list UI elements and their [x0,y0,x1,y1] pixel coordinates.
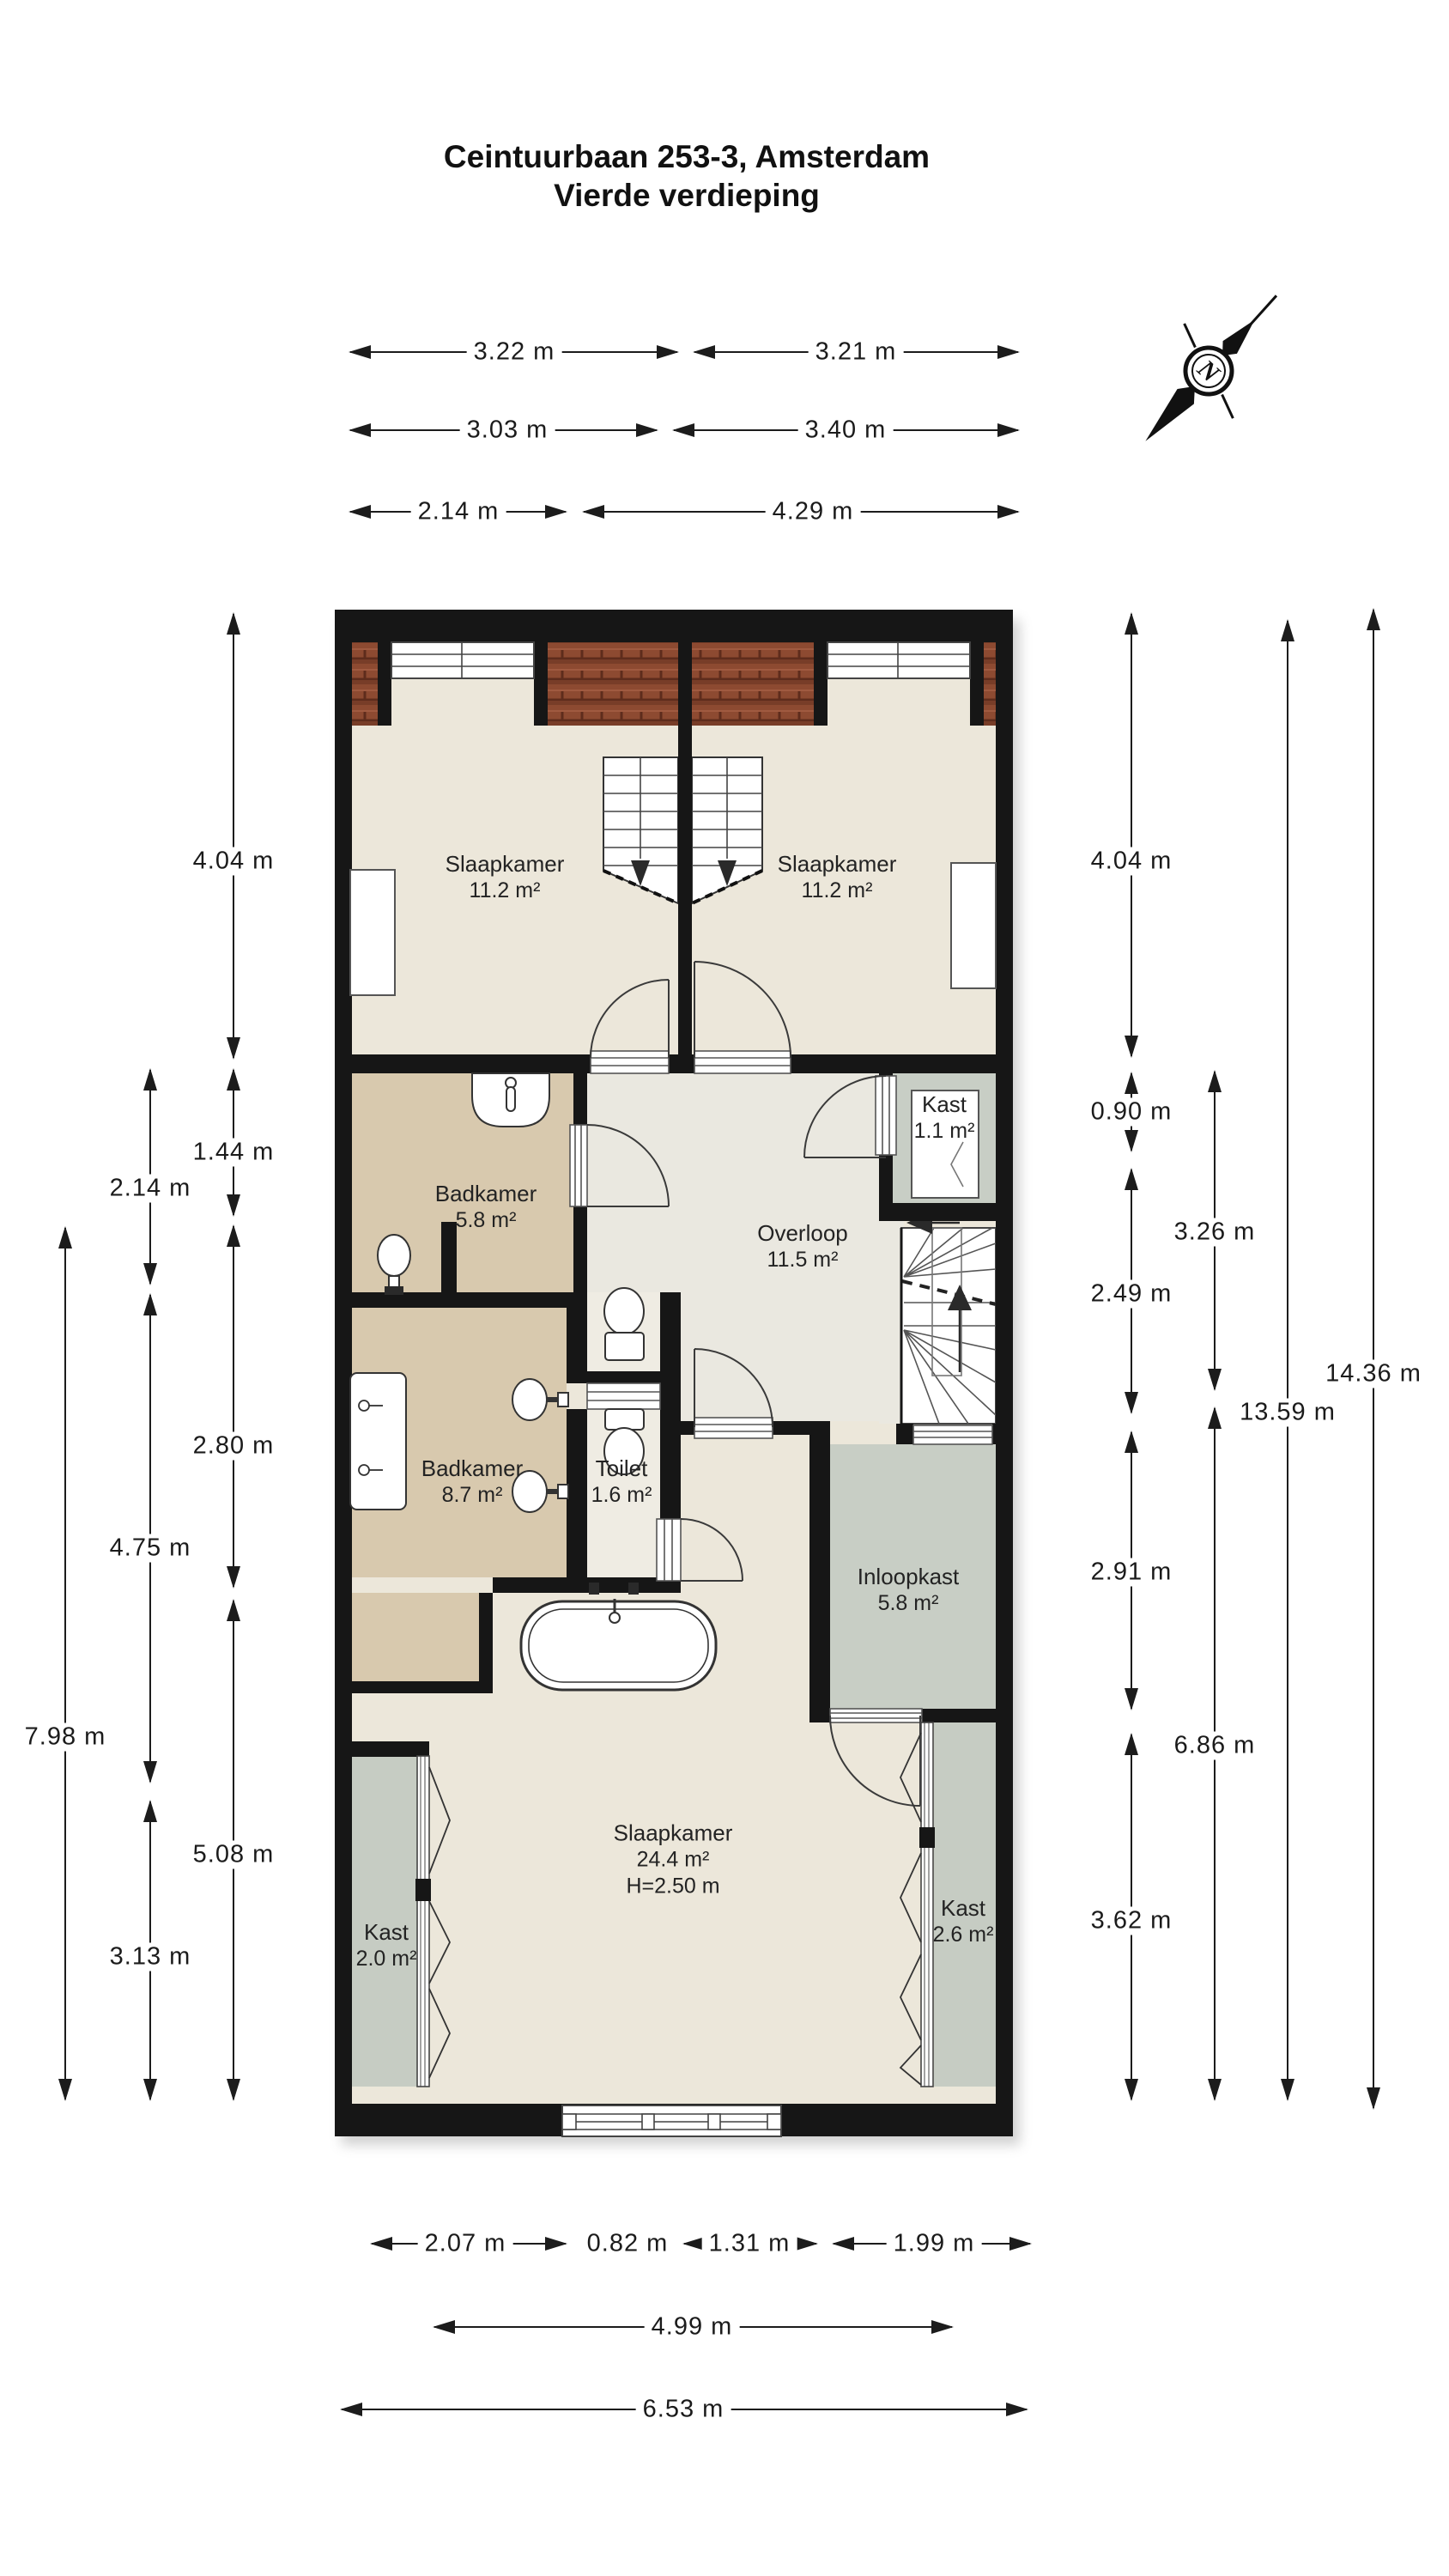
dim-top-1: 3.22 m [467,338,562,367]
dim-left-6: 4.75 m [103,1534,198,1563]
floorplan-svg: N [0,0,1449,2576]
dim-left-2: 1.44 m [186,1139,282,1167]
dim-right-3: 2.49 m [1084,1280,1179,1309]
dim-left-3: 2.80 m [186,1432,282,1461]
room-label-kast-1-1: Kast 1.1 m² [914,1091,975,1145]
dim-bottom-5: 4.99 m [645,2313,740,2342]
dim-right-7: 6.86 m [1167,1732,1263,1760]
dim-top-5: 2.14 m [411,498,506,526]
dim-left-4: 5.08 m [186,1841,282,1869]
bedroom-left-recess [350,870,395,995]
room-label-kast-2-0: Kast 2.0 m² [356,1919,417,1972]
room-label-kast-2-6: Kast 2.6 m² [933,1895,994,1948]
staircase-main [901,1212,996,1424]
dim-right-4: 2.91 m [1084,1558,1179,1587]
room-label-overloop: Overloop 11.5 m² [757,1220,848,1273]
dim-top-2: 3.21 m [809,338,904,367]
dim-left-1: 4.04 m [186,848,282,876]
room-label-slaapkamer-24: Slaapkamer 24.4 m² H=2.50 m [614,1820,733,1900]
compass-icon: N [1108,262,1313,474]
dim-right-5: 3.62 m [1084,1907,1179,1935]
room-label-slaapkamer-right: Slaapkamer 11.2 m² [778,851,897,904]
dim-left-5: 2.14 m [103,1175,198,1203]
dim-right-9: 14.36 m [1319,1360,1428,1388]
dim-bottom-6: 6.53 m [636,2396,731,2424]
dim-left-8: 7.98 m [18,1723,113,1752]
dim-top-3: 3.03 m [460,416,555,445]
dim-right-1: 4.04 m [1084,848,1179,876]
bedroom-right-recess [951,863,996,988]
room-label-badkamer-8-7: Badkamer 8.7 m² [421,1455,524,1509]
dim-bottom-4: 1.99 m [887,2230,982,2258]
dim-left-7: 3.13 m [103,1943,198,1971]
dim-bottom-1: 2.07 m [418,2230,513,2258]
room-label-badkamer-5-8: Badkamer 5.8 m² [435,1181,537,1234]
dim-bottom-3: 1.31 m [702,2230,797,2258]
dim-bottom-2: 0.82 m [580,2230,676,2258]
dim-top-6: 4.29 m [766,498,861,526]
room-label-toilet: Toilet 1.6 m² [591,1455,652,1509]
dormer-window-right [828,642,970,678]
dim-top-4: 3.40 m [798,416,894,445]
bottom-window [562,2105,781,2136]
room-label-inloopkast: Inloopkast 5.8 m² [858,1564,960,1617]
dim-right-8: 13.59 m [1233,1399,1343,1427]
dim-right-6: 3.26 m [1167,1218,1263,1247]
dim-right-2: 0.90 m [1084,1098,1179,1127]
floorplan-page: Ceintuurbaan 253-3, Amsterdam Vierde ver… [0,0,1449,2576]
dormer-window-left [391,642,534,678]
room-label-slaapkamer-left: Slaapkamer 11.2 m² [446,851,565,904]
